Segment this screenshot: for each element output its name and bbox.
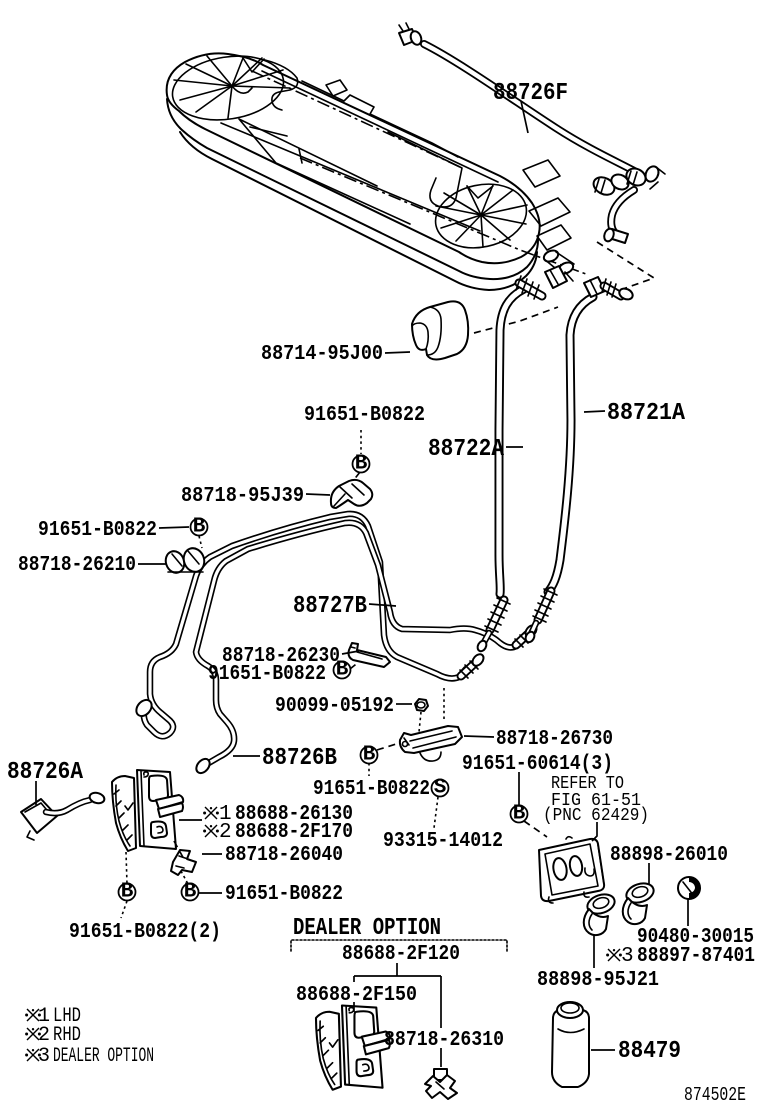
svg-text:91651-B0822: 91651-B0822 [304,404,425,427]
svg-text:91651-B0822(2): 91651-B0822(2) [69,921,221,944]
svg-text:88898-26010: 88898-26010 [610,844,728,867]
svg-text:RHD: RHD [53,1024,81,1047]
svg-text:88721A: 88721A [607,400,686,427]
svg-text:88898-95J21: 88898-95J21 [537,969,659,992]
svg-text:88718-26310: 88718-26310 [384,1029,504,1052]
svg-text:88714-95J00: 88714-95J00 [261,343,383,366]
svg-text:88726F: 88726F [493,80,568,107]
svg-text:2: 2 [219,821,232,844]
svg-text:88726B: 88726B [262,745,337,772]
svg-text:88718-26730: 88718-26730 [496,728,613,751]
svg-text:88479: 88479 [618,1038,681,1065]
svg-text:88727B: 88727B [293,593,367,620]
svg-text:91651-60614(3): 91651-60614(3) [462,753,613,776]
svg-text:88688-2F170: 88688-2F170 [235,821,353,844]
svg-text:2: 2 [38,1024,50,1047]
svg-text:93315-14012: 93315-14012 [383,830,503,853]
svg-text:88718-26210: 88718-26210 [18,554,136,577]
svg-text:(PNC 62429): (PNC 62429) [543,806,649,826]
svg-text:88722A: 88722A [428,436,505,463]
svg-text:90099-05192: 90099-05192 [275,695,394,718]
svg-text:91651-B0822: 91651-B0822 [313,778,430,801]
svg-text:91651-B0822: 91651-B0822 [225,883,343,906]
svg-text:88688-2F120: 88688-2F120 [342,943,460,966]
svg-text:88718-95J39: 88718-95J39 [181,485,304,508]
svg-text:88897-87401: 88897-87401 [637,945,755,968]
svg-text:88688-2F150: 88688-2F150 [296,984,417,1007]
svg-text:3: 3 [38,1045,50,1068]
svg-text:91651-B0822: 91651-B0822 [208,663,326,686]
svg-text:874502E: 874502E [684,1084,746,1106]
svg-text:DEALER OPTION: DEALER OPTION [293,915,441,942]
svg-text:88726A: 88726A [7,759,84,786]
svg-text:88718-26040: 88718-26040 [225,844,343,867]
svg-text:3: 3 [621,945,634,968]
svg-text:DEALER OPTION: DEALER OPTION [53,1045,154,1068]
svg-text:91651-B0822: 91651-B0822 [38,519,157,542]
